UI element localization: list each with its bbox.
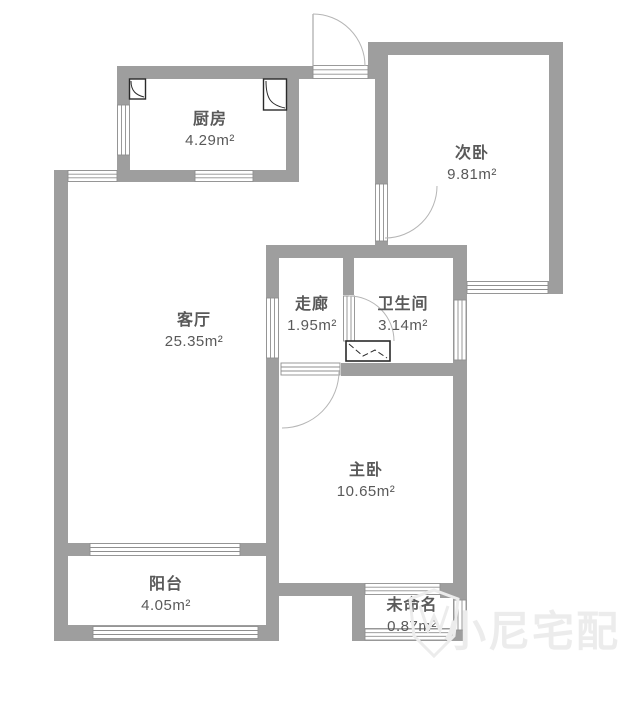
- window-balcony-top: [90, 544, 240, 556]
- entry-door-arc: [313, 14, 365, 66]
- room-label-kitchen: 厨房 4.29m²: [185, 110, 235, 150]
- second-bedroom-door: [376, 184, 438, 241]
- second-bedroom-door-arc: [385, 186, 437, 238]
- room-label-living-room: 客厅 25.35m²: [165, 311, 224, 351]
- window-kitchen-left: [118, 105, 130, 155]
- room-name: 次卧: [447, 144, 497, 165]
- wall-second-bedroom-right: [549, 42, 563, 294]
- window-living-top-left: [68, 171, 117, 182]
- room-label-master-bedroom: 主卧 10.65m²: [337, 461, 396, 501]
- wall-second-bedroom-top: [375, 42, 562, 55]
- window-balcony-bottom: [93, 627, 258, 639]
- wall-corridor-bathroom-divider: [343, 258, 354, 295]
- wall-master-bottom: [266, 583, 365, 596]
- window-kitchen-bottom: [195, 171, 253, 182]
- room-name: 卫生间: [377, 295, 428, 316]
- room-name: 主卧: [337, 461, 396, 482]
- room-area: 25.35m²: [165, 332, 224, 352]
- wall-unnamed-left: [352, 583, 365, 641]
- window-corridor-left: [267, 298, 279, 358]
- bathroom-flue-icon: [346, 341, 390, 361]
- wall-second-bedroom-left-upper: [375, 55, 388, 185]
- watermark-text: 小尼宅配: [444, 598, 640, 659]
- room-area: 9.81m²: [447, 165, 497, 185]
- floor-plan: 厨房 4.29m² 次卧 9.81m² 客厅 25.35m² 走廊 1.95m²…: [0, 0, 640, 709]
- wall-second-bedroom-left-lower: [375, 240, 388, 258]
- room-name: 阳台: [141, 575, 191, 596]
- room-name: 走廊: [287, 295, 337, 316]
- room-area: 10.65m²: [337, 482, 396, 502]
- wall-bathroom-bottom: [341, 363, 467, 376]
- wall-corridor-bathroom-top: [266, 245, 467, 258]
- room-label-second-bedroom: 次卧 9.81m²: [447, 144, 497, 184]
- wall-kitchen-right: [286, 79, 299, 182]
- room-area: 4.29m²: [185, 131, 235, 151]
- room-area: 1.95m²: [287, 316, 337, 336]
- room-area: 3.14m²: [377, 316, 428, 336]
- room-name: 客厅: [165, 311, 224, 332]
- room-label-bathroom: 卫生间 3.14m²: [377, 295, 428, 335]
- wall-kitchen-top: [117, 66, 313, 79]
- entry-door: [313, 14, 368, 79]
- room-label-corridor: 走廊 1.95m²: [287, 295, 337, 335]
- master-bedroom-door: [281, 363, 340, 428]
- wall-left-exterior: [54, 170, 68, 641]
- room-label-balcony: 阳台 4.05m²: [141, 575, 191, 615]
- room-area: 4.05m²: [141, 596, 191, 616]
- room-name: 厨房: [185, 110, 235, 131]
- kitchen-flue-left-icon: [130, 79, 146, 99]
- window-bathroom-right: [454, 300, 466, 360]
- kitchen-flue-right-icon: [264, 79, 287, 110]
- window-second-bedroom-bottom: [467, 282, 548, 294]
- master-bedroom-door-arc: [282, 371, 339, 428]
